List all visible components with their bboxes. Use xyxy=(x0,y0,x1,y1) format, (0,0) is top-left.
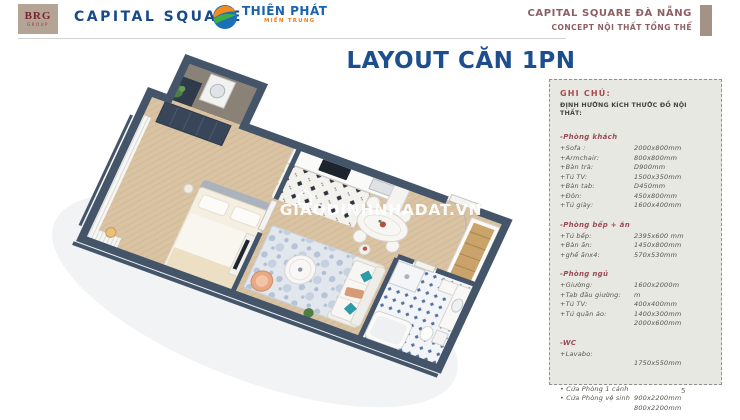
thienphat-logo-name: THIÊN PHÁT xyxy=(242,4,328,18)
spec-row: +Tab đầu giường:m xyxy=(560,291,711,301)
spec-row: 2000x600mm xyxy=(560,319,711,329)
page-number: 5 xyxy=(681,387,685,395)
page-title: LAYOUT CĂN 1PN xyxy=(346,48,575,74)
spec-row: 800x2200mm xyxy=(560,404,711,414)
notes-sections: -Phòng khách+Sofa :2000x800mm+Armchair:8… xyxy=(560,132,711,369)
spec-row: +Bàn ăn:1450x800mm xyxy=(560,241,711,251)
spec-section-name: -Phòng ngủ xyxy=(560,269,711,279)
spec-row: +ghế ănx4:570x530mm xyxy=(560,251,711,261)
thienphat-logo-sub: MIỀN TRUNG xyxy=(264,18,328,25)
spec-row: +Lavabo: xyxy=(560,350,711,360)
notes-panel: GHI CHÚ: ĐỊNH HƯỚNG KÍCH THƯỚC ĐỒ NỘI TH… xyxy=(549,79,722,385)
spec-row: +Tủ TV:1500x350mm xyxy=(560,173,711,183)
thienphat-logo-icon xyxy=(212,4,238,30)
spec-row: +Armchair:800x800mm xyxy=(560,154,711,164)
project-name-block: CAPITAL SQUARE ĐÀ NẴNG CONCEPT NỘI THẤT … xyxy=(527,8,692,32)
spec-row: +Bàn tab:D450mm xyxy=(560,182,711,192)
spec-row: • Cửa Phòng vệ sinh900x2200mm xyxy=(560,394,711,404)
spec-row: +Tủ giày:1600x400mm xyxy=(560,201,711,211)
spec-row: +Sofa :2000x800mm xyxy=(560,144,711,154)
notes-doors: • Cửa Phòng 1 cánh• Cửa Phòng vệ sinh900… xyxy=(560,385,711,414)
brg-logo: BRG GROUP xyxy=(18,4,58,34)
spec-row: +Giường:1600x2000m xyxy=(560,281,711,291)
brg-logo-text: BRG xyxy=(25,11,52,22)
spec-section: -Phòng khách+Sofa :2000x800mm+Armchair:8… xyxy=(560,132,711,211)
spec-section-name: -Phòng khách xyxy=(560,132,711,142)
notes-subtitle: ĐỊNH HƯỚNG KÍCH THƯỚC ĐỒ NỘI THẤT: xyxy=(560,102,711,118)
spec-row: +Đôn:450x800mm xyxy=(560,192,711,202)
project-subtitle: CONCEPT NỘI THẤT TỔNG THỂ xyxy=(527,23,692,32)
accent-bar xyxy=(700,5,712,36)
thienphat-logo: THIÊN PHÁT MIỀN TRUNG xyxy=(212,4,328,30)
spec-row: +Tủ TV:400x400mm xyxy=(560,300,711,310)
spec-section: -WC+Lavabo:1750x550mm xyxy=(560,338,711,369)
spec-section: -Phòng ngủ+Giường:1600x2000m+Tab đầu giư… xyxy=(560,269,711,329)
watermark-text: GIAODINHNHADAT.VN xyxy=(280,201,483,219)
header-divider xyxy=(18,38,566,39)
notes-title: GHI CHÚ: xyxy=(560,89,711,99)
header: BRG GROUP CAPITAL SQUARE THIÊN PHÁT MIỀN… xyxy=(0,0,740,40)
spec-section: -Phòng bếp + ăn+Tủ bếp:2395x600 mm+Bàn ă… xyxy=(560,220,711,261)
spec-row: +Bàn trà:D900mm xyxy=(560,163,711,173)
spec-row: +Tủ bếp:2395x600 mm xyxy=(560,232,711,242)
spec-row: +Tủ quần áo:1400x300mm xyxy=(560,310,711,320)
spec-section-name: -WC xyxy=(560,338,711,348)
project-title: CAPITAL SQUARE ĐÀ NẴNG xyxy=(527,8,692,20)
spec-row: 1750x550mm xyxy=(560,359,711,369)
spec-row: • Cửa Phòng 1 cánh xyxy=(560,385,711,395)
spec-section-name: -Phòng bếp + ăn xyxy=(560,220,711,230)
